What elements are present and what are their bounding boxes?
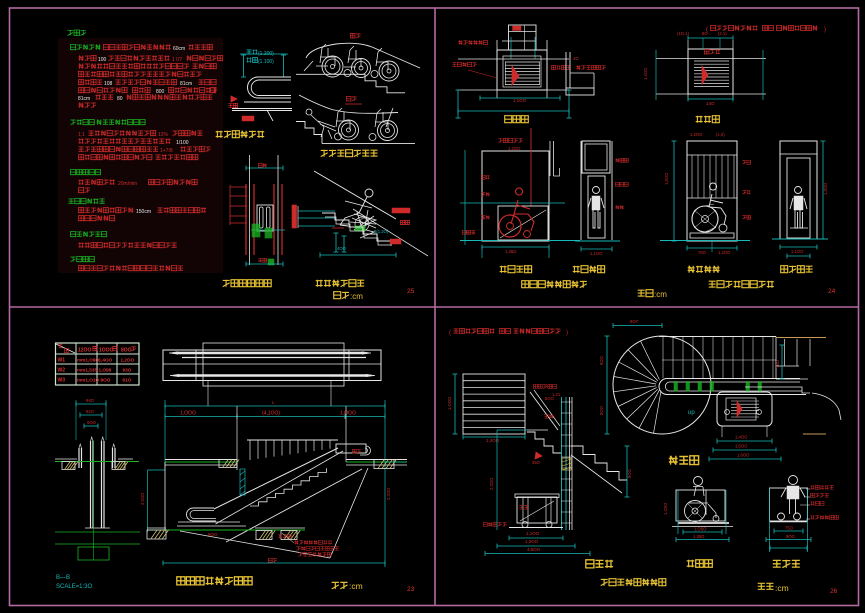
svg-text:B—B: B—B <box>56 575 70 581</box>
svg-text:1,5OO: 1,5OO <box>735 444 748 449</box>
svg-text:SCALE=1:3O: SCALE=1:3O <box>56 584 93 590</box>
svg-text:(1,5): (1,5) <box>716 132 725 137</box>
svg-text:W2: W2 <box>58 368 66 374</box>
svg-text:(1.100): (1.100) <box>258 59 274 65</box>
svg-text:1,4OO: 1,4OO <box>643 67 648 80</box>
svg-text:1,35O: 1,35O <box>505 249 517 254</box>
svg-text:82O: 82O <box>86 409 95 414</box>
svg-text:8OO: 8OO <box>101 378 111 383</box>
svg-text:1.21: 1.21 <box>552 392 561 397</box>
svg-text:1,2OO: 1,2OO <box>508 146 521 151</box>
svg-text:(1O.1): (1O.1) <box>677 31 689 36</box>
svg-text:45O: 45O <box>532 460 541 465</box>
svg-text:1,3OO: 1,3OO <box>525 539 539 544</box>
svg-text:4,5OO: 4,5OO <box>527 547 541 552</box>
svg-text:1,35O: 1,35O <box>693 534 705 539</box>
svg-text:1,1: 1,1 <box>78 132 85 138</box>
svg-text:1,6OO: 1,6OO <box>737 453 750 458</box>
svg-text:25: 25 <box>407 288 415 295</box>
svg-text:93O: 93O <box>123 368 132 373</box>
svg-text:1,4OO: 1,4OO <box>99 358 113 363</box>
svg-text:108: 108 <box>104 81 113 87</box>
svg-text:1,4OO: 1,4OO <box>735 435 748 440</box>
svg-text:150cm: 150cm <box>136 209 151 215</box>
svg-text:W1: W1 <box>58 358 66 364</box>
svg-text:61O: 61O <box>123 378 132 383</box>
svg-text:1 0?: 1 0? <box>172 57 182 63</box>
svg-text:800: 800 <box>156 89 165 95</box>
svg-text:8OO: 8OO <box>121 348 132 354</box>
svg-text:1,1OO: 1,1OO <box>526 531 540 536</box>
svg-text::cm: :cm <box>775 583 789 593</box>
svg-text:mm1,O9O: mm1,O9O <box>77 358 99 363</box>
svg-text:80: 80 <box>117 96 123 102</box>
svg-text:1,2OO: 1,2OO <box>121 358 135 363</box>
svg-text:1,2OO: 1,2OO <box>718 250 731 255</box>
svg-text:60cm: 60cm <box>173 46 185 52</box>
svg-text:9OO: 9OO <box>627 468 632 478</box>
svg-text:14O: 14O <box>706 101 715 106</box>
svg-text:2O: 2O <box>573 56 579 61</box>
svg-text:12%: 12% <box>158 132 169 138</box>
svg-text::cm: :cm <box>349 581 363 591</box>
svg-text:1,O98: 1,O98 <box>99 368 112 373</box>
svg-text:2,2OO: 2,2OO <box>386 487 391 500</box>
svg-text:1,2OO: 1,2OO <box>690 132 703 137</box>
svg-text::cm: :cm <box>350 292 363 301</box>
svg-text:up: up <box>688 410 695 416</box>
svg-text:(2.1): (2.1) <box>718 31 727 36</box>
svg-text:1,8OO: 1,8OO <box>823 182 828 195</box>
svg-text:9OO: 9OO <box>786 534 796 539</box>
svg-text:4OO: 4OO <box>337 246 347 251</box>
svg-text:1/100: 1/100 <box>176 140 189 146</box>
svg-text:1,O5O: 1,O5O <box>694 527 707 532</box>
svg-text:75O: 75O <box>785 526 794 531</box>
svg-text:94O: 94O <box>86 398 95 403</box>
svg-text:1OOO: 1OOO <box>99 348 114 354</box>
svg-text:1,OOO: 1,OOO <box>340 411 356 417</box>
svg-text:9O7: 9O7 <box>630 319 639 324</box>
svg-text:81cm: 81cm <box>78 96 90 102</box>
svg-text:24: 24 <box>828 288 836 295</box>
svg-text:1,1OO: 1,1OO <box>590 251 603 256</box>
svg-text:6OO: 6OO <box>87 420 97 425</box>
svg-text:): ) <box>566 330 568 336</box>
svg-text:4,5OO: 4,5OO <box>140 492 145 505</box>
svg-text:9OO: 9OO <box>599 355 604 365</box>
svg-text:75O: 75O <box>698 250 707 255</box>
svg-text:8OO: 8OO <box>208 532 218 537</box>
svg-text:2,2OO: 2,2OO <box>489 477 494 490</box>
svg-text:1,OOO: 1,OOO <box>447 396 452 410</box>
svg-text:20m/min: 20m/min <box>118 181 137 187</box>
svg-text:23: 23 <box>407 586 415 593</box>
svg-text::cm: :cm <box>654 290 667 299</box>
svg-text:W3: W3 <box>58 378 66 384</box>
svg-text:1,1OO: 1,1OO <box>791 249 804 254</box>
svg-text:(: ( <box>449 330 451 336</box>
svg-text:26: 26 <box>830 588 838 595</box>
svg-text:1,4OO: 1,4OO <box>486 438 500 443</box>
svg-text:mm1,535: mm1,535 <box>77 368 97 373</box>
svg-text:1+7/8: 1+7/8 <box>160 148 173 154</box>
svg-text:(4,1OO): (4,1OO) <box>262 411 280 417</box>
svg-text:mm1,O1O: mm1,O1O <box>77 378 99 383</box>
svg-text:8O: 8O <box>702 31 708 36</box>
svg-text:75O: 75O <box>775 359 780 368</box>
svg-text:100: 100 <box>98 57 107 63</box>
svg-text:): ) <box>824 27 826 33</box>
svg-text:81cm: 81cm <box>180 81 192 87</box>
svg-text:9OO: 9OO <box>599 405 604 415</box>
svg-text:1,1OO: 1,1OO <box>513 98 527 103</box>
svg-text:12OO: 12OO <box>78 348 91 354</box>
svg-text:1,8OO: 1,8OO <box>664 172 669 185</box>
svg-text:1,OOO: 1,OOO <box>180 411 196 417</box>
svg-text:1,O5O: 1,O5O <box>663 502 668 515</box>
